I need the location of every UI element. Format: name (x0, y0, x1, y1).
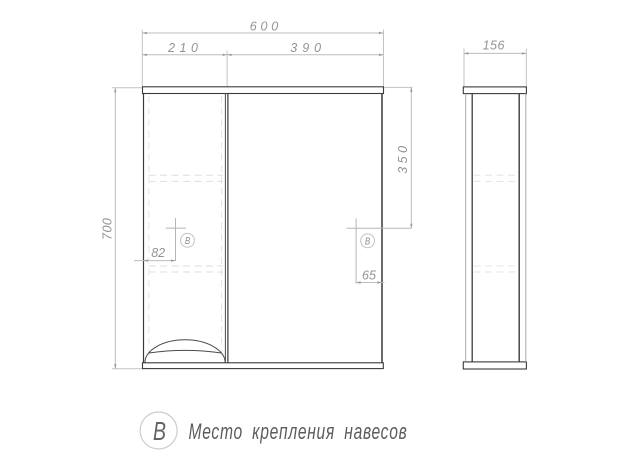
svg-text:82: 82 (151, 246, 165, 260)
svg-text:156: 156 (483, 39, 505, 53)
svg-text:В: В (185, 235, 190, 246)
svg-text:В: В (365, 235, 370, 246)
svg-text:350: 350 (396, 142, 410, 173)
svg-text:390: 390 (290, 41, 326, 55)
svg-text:210: 210 (167, 41, 202, 55)
svg-text:700: 700 (100, 218, 114, 240)
svg-text:600: 600 (250, 19, 282, 33)
svg-text:В: В (153, 416, 166, 445)
svg-text:Место крепления навесов: Место крепления навесов (189, 421, 408, 445)
svg-text:65: 65 (362, 269, 376, 283)
